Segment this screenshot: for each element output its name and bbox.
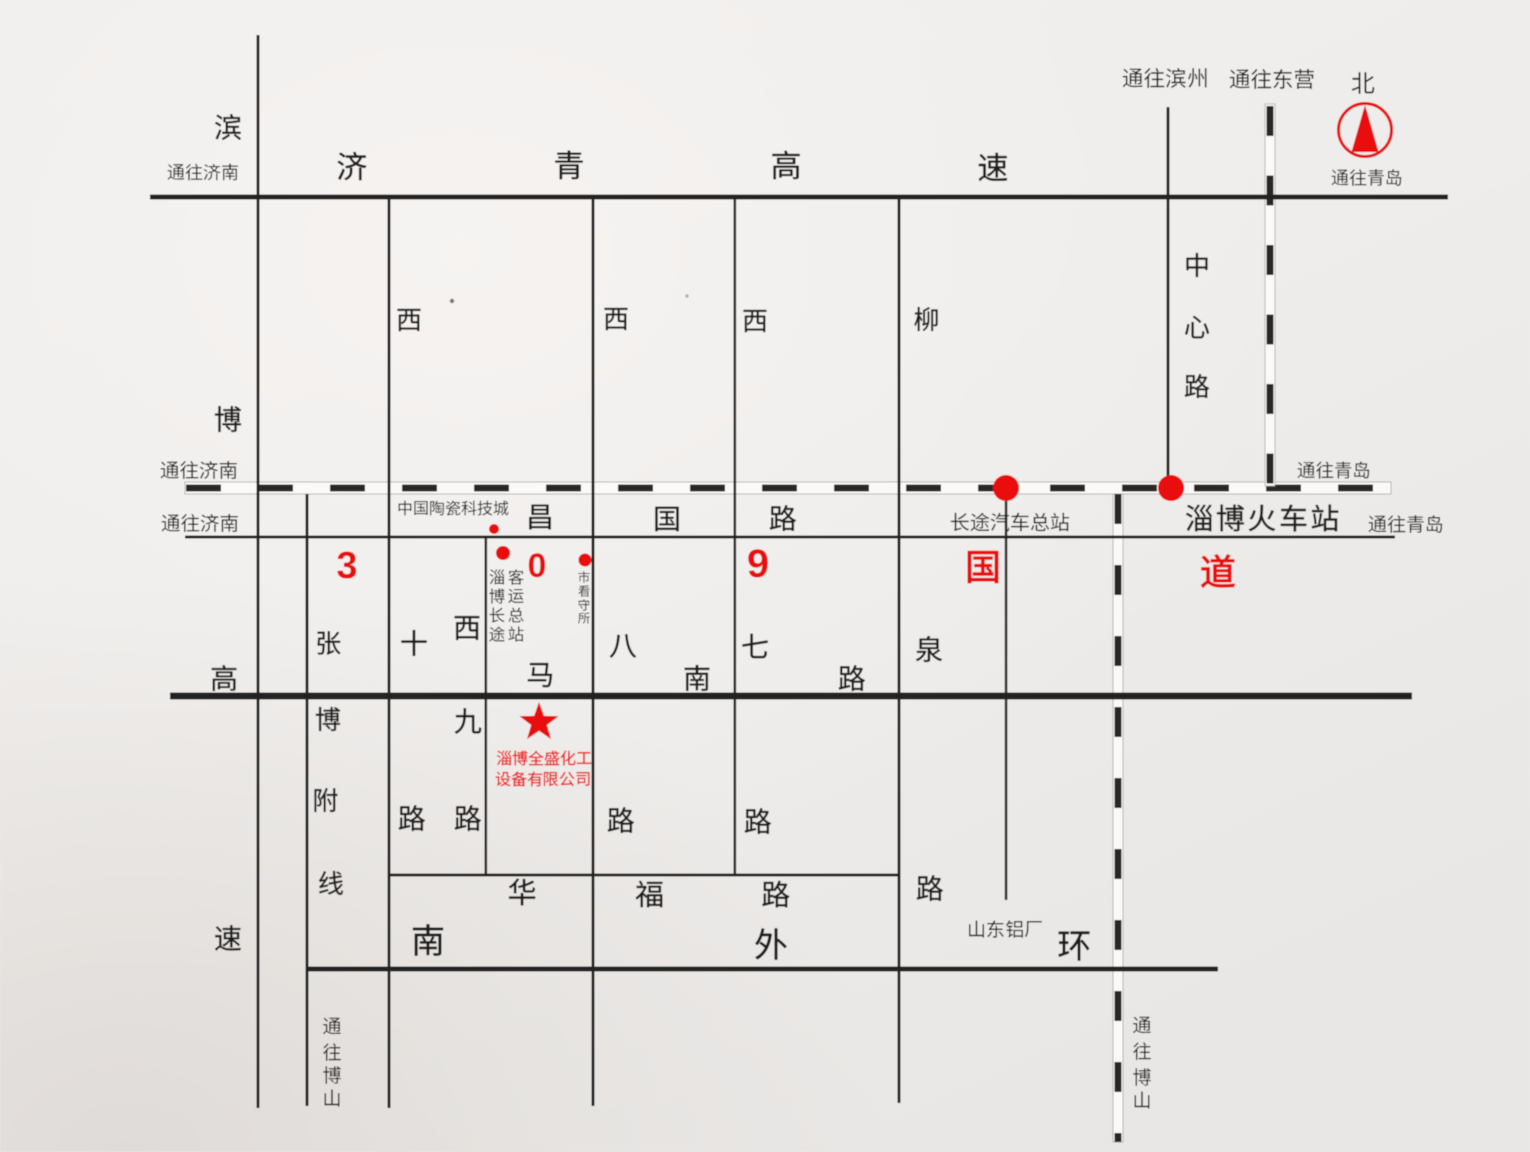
svg-text:3: 3 [336,545,357,587]
svg-text:0: 0 [528,547,547,585]
svg-text:9: 9 [747,542,769,586]
